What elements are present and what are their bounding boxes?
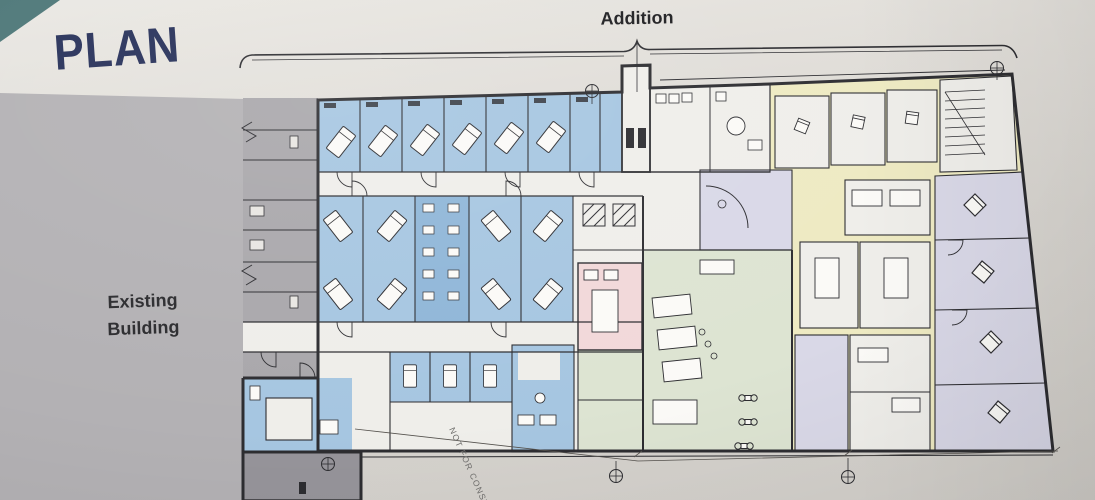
addition-label: Addition — [597, 7, 677, 29]
floor-plan-drawing: NOT FOR CONSTRUCTION — [0, 0, 1095, 500]
existing-building-label: Existing Building — [83, 286, 203, 344]
existing-building-line2: Building — [84, 313, 203, 344]
existing-building-line1: Existing — [83, 286, 202, 317]
page-title: PLAN — [52, 15, 182, 82]
floor-plan-photo: NOT FOR CONSTRUCTION PLAN Addition Exist… — [0, 0, 1095, 500]
photo-corner — [0, 0, 60, 42]
